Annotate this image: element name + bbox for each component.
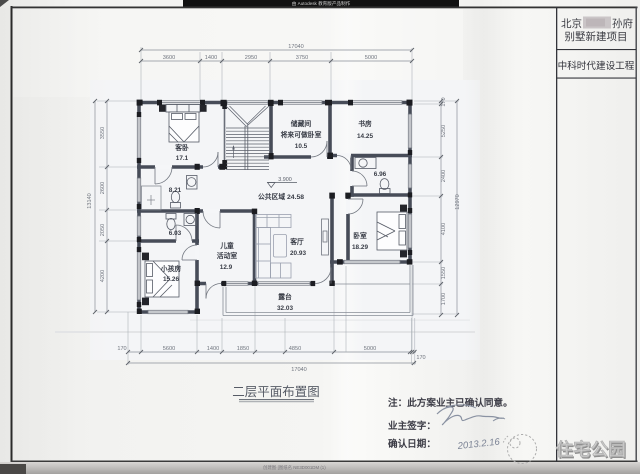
svg-text:业主签字：: 业主签字： [388, 420, 436, 432]
svg-text:中科时代建设工程: 中科时代建设工程 [558, 60, 635, 72]
svg-text:2400: 2400 [441, 170, 447, 182]
svg-text:储藏间: 储藏间 [290, 119, 312, 128]
svg-text:1550: 1550 [441, 267, 447, 279]
svg-text:3.900: 3.900 [278, 177, 292, 183]
svg-text:确认日期：: 确认日期： [388, 438, 436, 450]
svg-text:由 Autodesk 教育版产品制作: 由 Autodesk 教育版产品制作 [292, 0, 351, 7]
svg-text:3750: 3750 [296, 55, 308, 61]
svg-text:2600: 2600 [100, 182, 106, 194]
svg-text:书房: 书房 [358, 119, 372, 128]
svg-text:客厅: 客厅 [289, 237, 304, 246]
svg-text:14.25: 14.25 [357, 133, 373, 140]
svg-text:20.93: 20.93 [290, 250, 306, 257]
svg-text:32.03: 32.03 [277, 305, 293, 312]
svg-text:2050: 2050 [100, 224, 106, 236]
svg-text:1850: 1850 [237, 346, 249, 352]
svg-text:露台: 露台 [278, 292, 292, 301]
svg-text:170: 170 [416, 355, 425, 361]
svg-text:二层平面布置图: 二层平面布置图 [232, 385, 320, 399]
svg-text:5600: 5600 [163, 346, 175, 352]
svg-text:12970: 12970 [455, 194, 461, 210]
svg-text:13140: 13140 [87, 193, 93, 209]
svg-text:1700: 1700 [441, 293, 447, 305]
svg-text:4850: 4850 [289, 346, 301, 352]
svg-text:5250: 5250 [441, 125, 447, 137]
svg-text:公共区域 24.58: 公共区域 24.58 [258, 192, 304, 201]
svg-text:孙府: 孙府 [612, 17, 633, 30]
svg-text:北京: 北京 [561, 17, 582, 30]
svg-text:170: 170 [441, 97, 447, 106]
svg-text:1400: 1400 [205, 55, 217, 61]
svg-text:170: 170 [117, 346, 126, 352]
svg-text:创建图·[图纸名 NE3D001DM (1): 创建图·[图纸名 NE3D001DM (1) [263, 464, 326, 471]
svg-text:客卧: 客卧 [174, 143, 189, 152]
svg-text:3550: 3550 [100, 127, 106, 139]
svg-text:5000: 5000 [364, 346, 376, 352]
svg-text:3600: 3600 [163, 55, 175, 61]
svg-text:住宅公园: 住宅公园 [556, 440, 626, 460]
svg-text:4200: 4200 [100, 270, 106, 282]
svg-text:小孩房: 小孩房 [160, 264, 182, 273]
svg-text:17.1: 17.1 [176, 155, 189, 162]
svg-text:8.21: 8.21 [169, 187, 182, 194]
svg-text:别墅新建项目: 别墅新建项目 [565, 30, 628, 43]
svg-text:卧室: 卧室 [353, 231, 367, 240]
svg-text:儿童: 儿童 [219, 241, 234, 250]
svg-text:6.03: 6.03 [169, 230, 182, 237]
svg-text:10.5: 10.5 [295, 143, 308, 150]
svg-text:12.9: 12.9 [220, 264, 233, 271]
svg-text:1400: 1400 [207, 346, 219, 352]
svg-text:将来可做卧室: 将来可做卧室 [281, 130, 322, 139]
svg-text:5000: 5000 [365, 55, 377, 61]
svg-text:活动室: 活动室 [217, 251, 238, 260]
svg-text:15.26: 15.26 [163, 276, 179, 283]
svg-text:18.29: 18.29 [352, 244, 368, 251]
svg-text:2950: 2950 [245, 55, 257, 61]
svg-text:17040: 17040 [291, 367, 307, 373]
svg-text:6.96: 6.96 [374, 171, 387, 178]
svg-text:4100: 4100 [441, 223, 447, 235]
svg-text:17040: 17040 [288, 44, 304, 50]
